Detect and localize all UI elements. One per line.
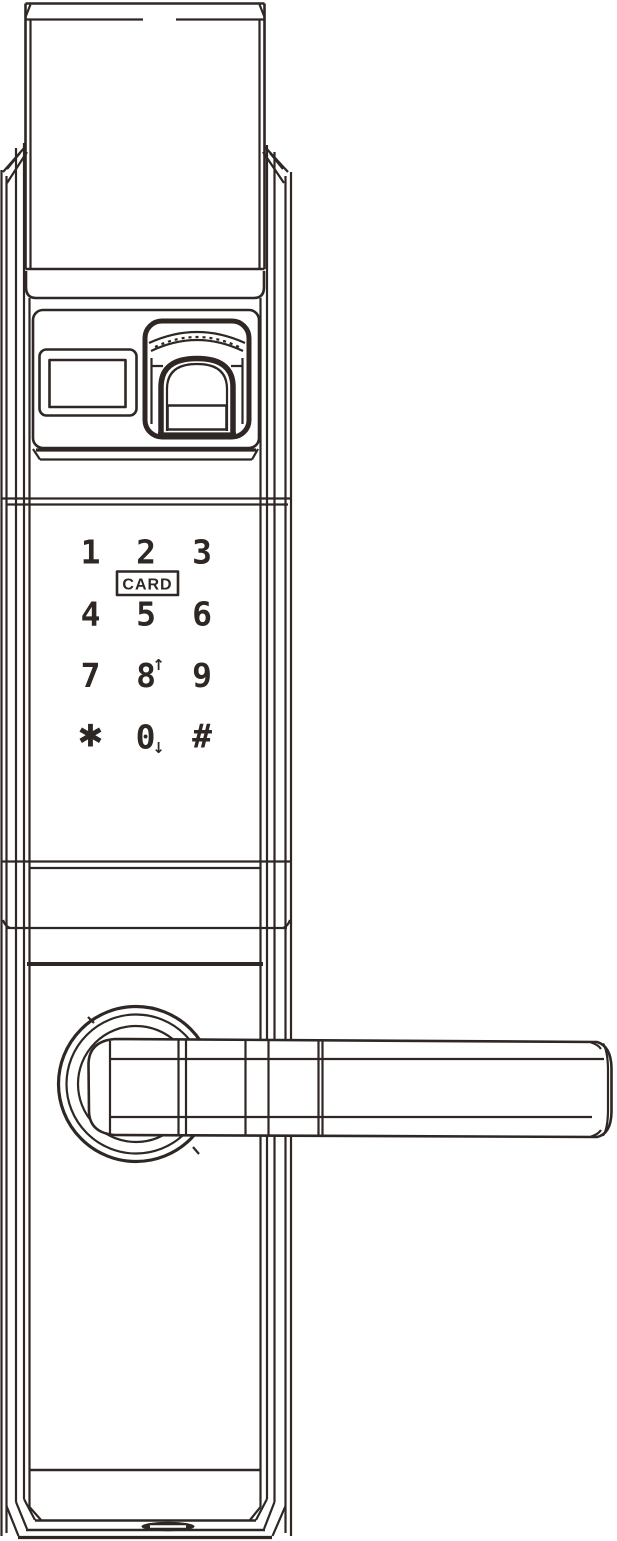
key-star[interactable]: ✱ [68, 712, 113, 758]
fingerprint-scanner[interactable] [145, 321, 249, 437]
cap-outline [26, 4, 265, 270]
lock-top-cap [26, 4, 265, 299]
key-3-label: 3 [192, 533, 212, 572]
key-3[interactable]: 3 [180, 528, 225, 574]
key-4-label: 4 [81, 595, 101, 634]
door-lock-line-drawing: 1 2 3 CARD 4 5 6 7 [0, 0, 617, 1541]
key-hash-label: # [192, 717, 212, 756]
fingerprint-sensor-pad [168, 406, 227, 430]
key-1[interactable]: 1 [68, 528, 113, 574]
key-6-label: 6 [192, 595, 212, 634]
key-4[interactable]: 4 [68, 590, 113, 636]
screenshot-root: 1 2 3 CARD 4 5 6 7 [0, 0, 617, 1541]
key-7-label: 7 [81, 656, 101, 695]
right-side-rails [261, 145, 292, 1536]
bottom-panel [18, 1521, 272, 1538]
left-side-rails [2, 143, 30, 1536]
key-9-label: 9 [192, 656, 212, 695]
key-5-label: 5 [136, 595, 156, 634]
card-window-inner [50, 360, 126, 407]
keypad: 1 2 3 CARD 4 5 6 7 [68, 528, 225, 758]
cap-top-band [26, 5, 265, 270]
key-8-up-arrow-icon: ↑ [152, 656, 165, 674]
key-0[interactable]: 0 ↓ [124, 712, 169, 758]
fingerprint-cover-arcs [149, 332, 245, 351]
handle-lever[interactable] [89, 1039, 612, 1137]
lever-outline [89, 1039, 612, 1137]
separator-mid-body [3, 920, 290, 928]
key-6[interactable]: 6 [180, 590, 225, 636]
key-7[interactable]: 7 [68, 651, 113, 697]
key-5[interactable]: 5 [124, 590, 169, 636]
key-9[interactable]: 9 [180, 651, 225, 697]
fingerprint-window-arch [161, 359, 233, 435]
key-2-label: 2 [136, 533, 156, 572]
bottom-port [142, 1522, 195, 1532]
key-hash[interactable]: # [180, 712, 225, 758]
handle-assembly [59, 1007, 612, 1162]
key-2[interactable]: 2 [124, 528, 169, 574]
key-1-label: 1 [81, 533, 101, 572]
auth-module-panel [33, 310, 259, 460]
key-0-down-arrow-icon: ↓ [152, 739, 165, 757]
card-reader-window [40, 350, 137, 416]
key-8[interactable]: 8 ↑ [124, 651, 169, 697]
key-star-label: ✱ [78, 719, 104, 755]
fingerprint-window-arch-inner [167, 364, 227, 431]
body-section-lines [2, 499, 291, 1471]
cap-base-band [26, 271, 264, 298]
